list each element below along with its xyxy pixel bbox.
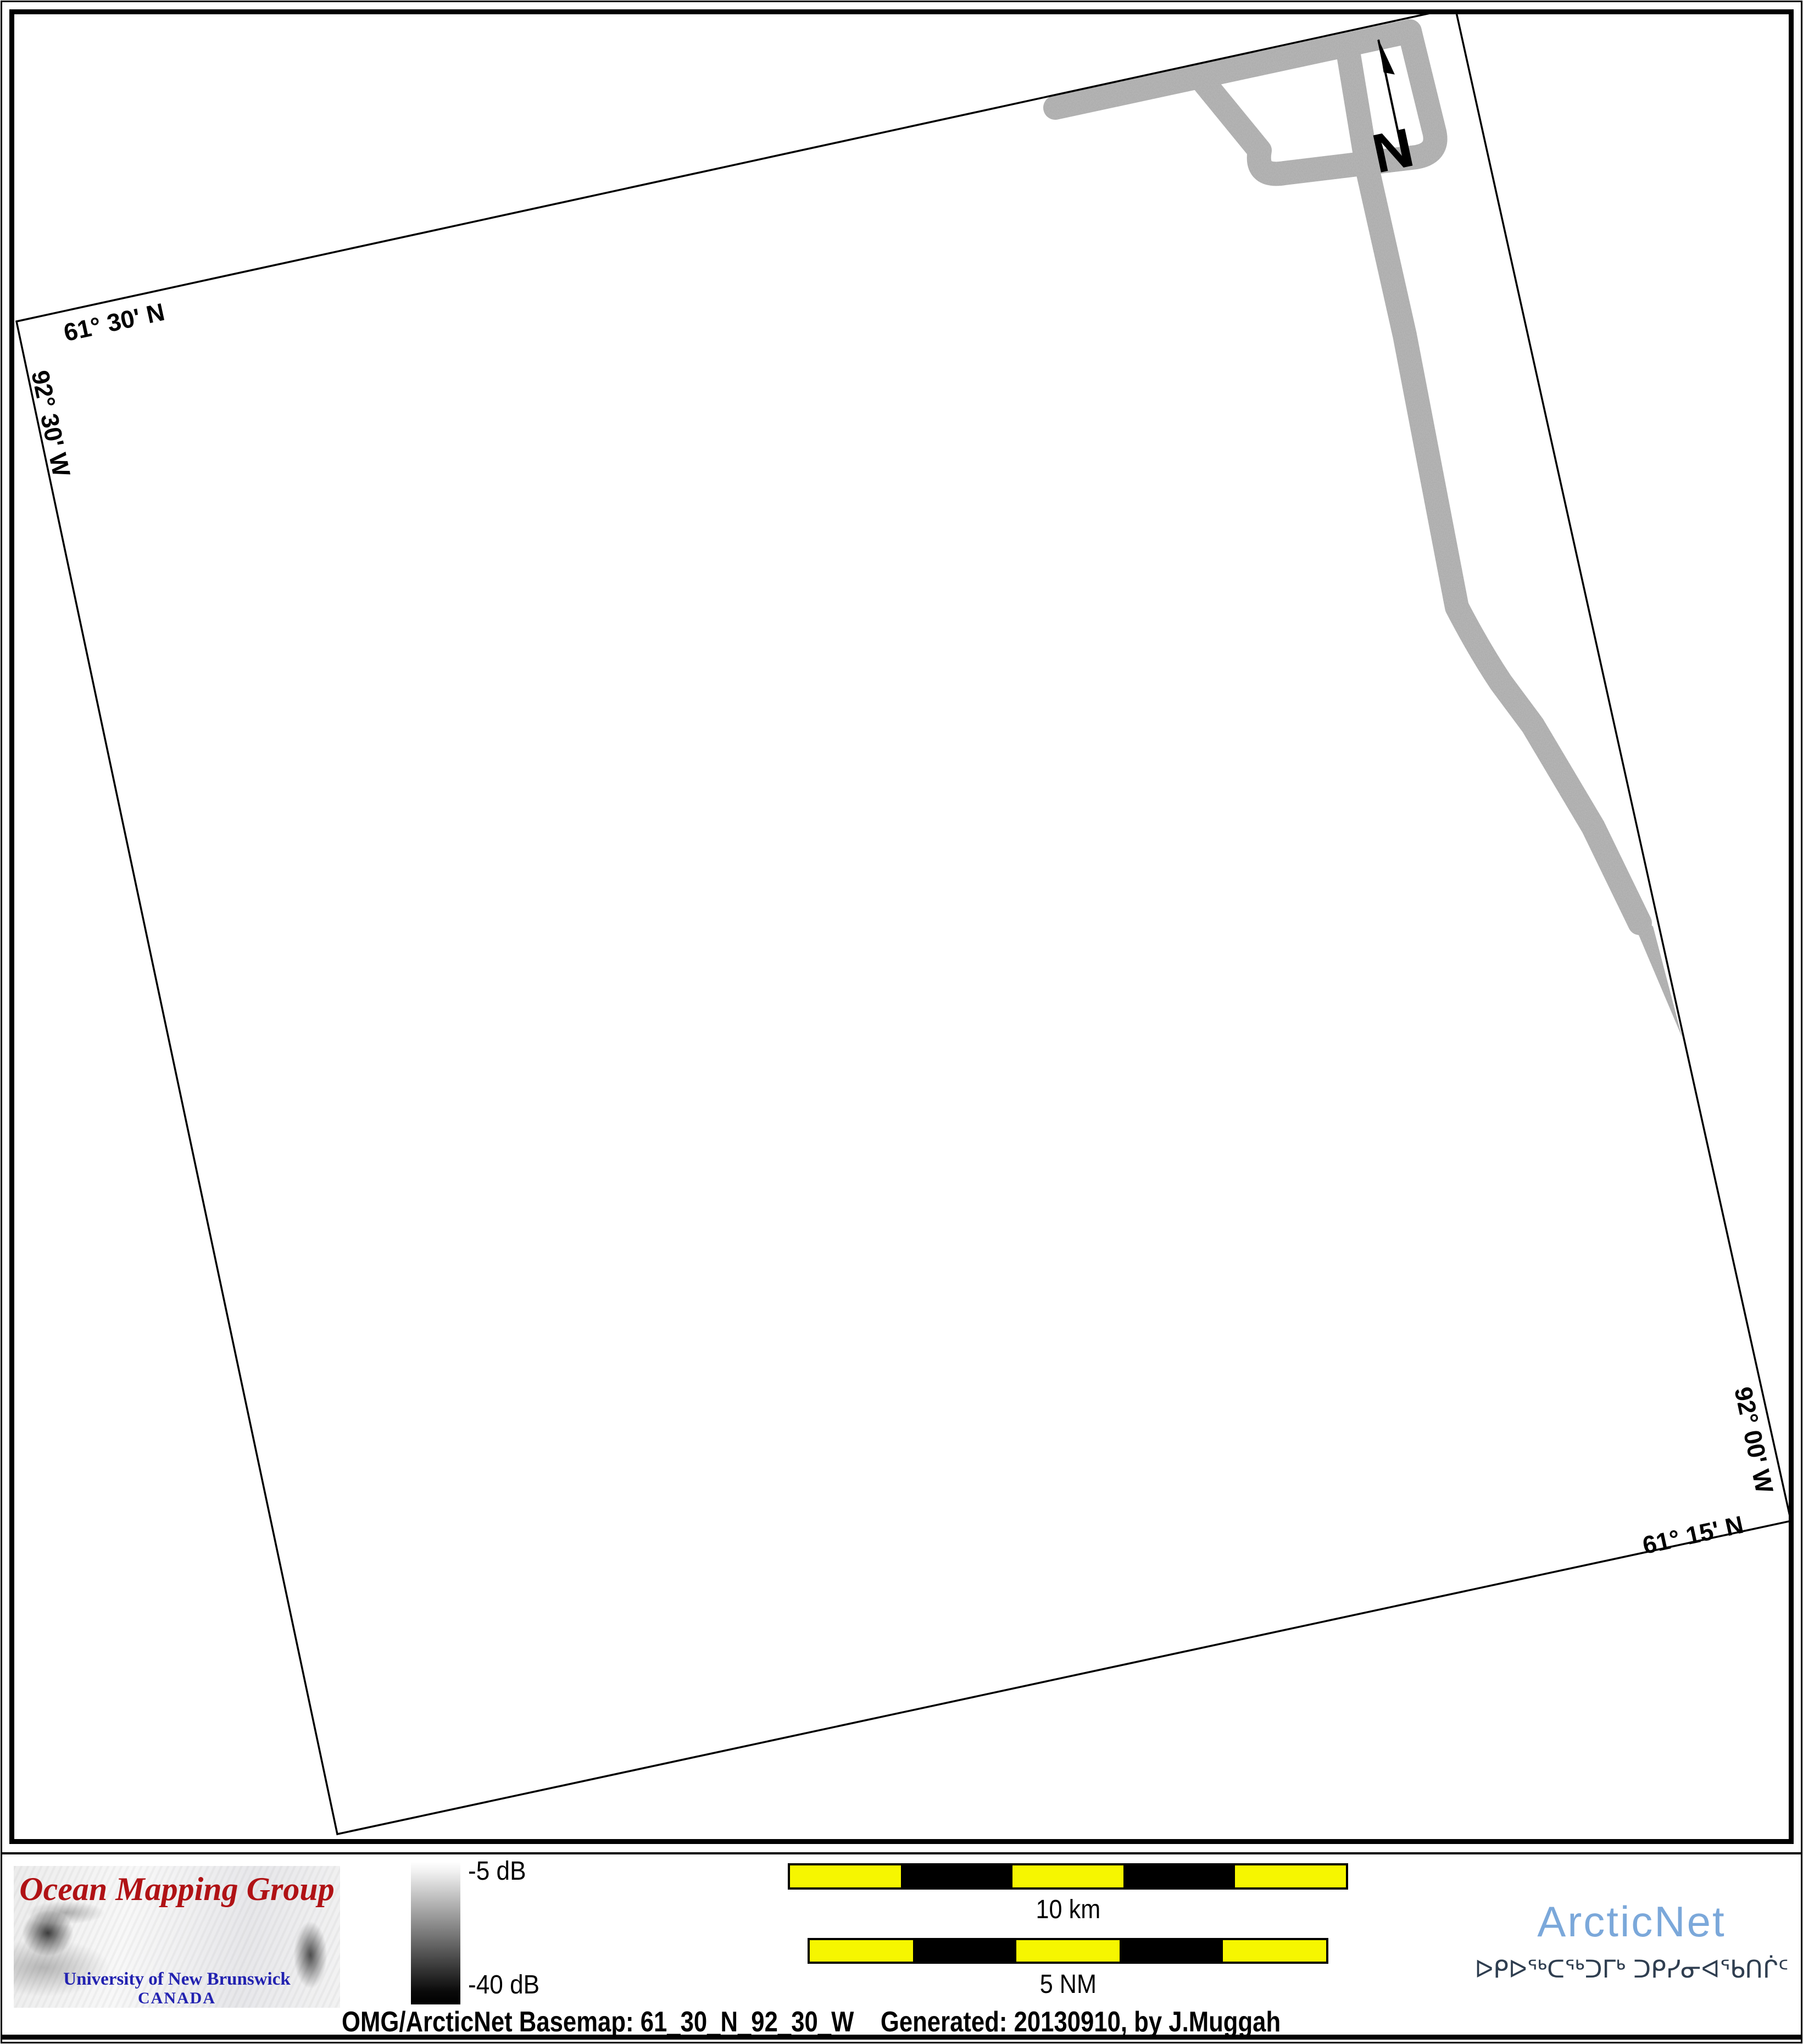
scalebar-5nm-label: 5 NM xyxy=(808,1969,1328,1999)
scalebar-segment xyxy=(1120,1940,1223,1962)
colorbar-max-label: -5 dB xyxy=(468,1856,526,1886)
scalebar-5nm xyxy=(808,1938,1328,1964)
basemap-caption: OMG/ArcticNet Basemap: 61_30_N_92_30_W G… xyxy=(342,2006,1281,2039)
scalebar-segment xyxy=(790,1865,901,1887)
scalebar-segment xyxy=(1012,1865,1123,1887)
scalebar-segment xyxy=(1235,1865,1346,1887)
basemap-sheet: 61° 30' N 92° 30' W 92° 00' W 61° 15' N … xyxy=(0,0,1803,2044)
scalebar-10km-label: 10 km xyxy=(788,1895,1348,1925)
footer-separator-line xyxy=(2,1852,1801,1854)
scalebar-segment xyxy=(901,1865,1012,1887)
scalebar-5nm-text: 5 NM xyxy=(1039,1969,1096,1999)
scalebar-segment xyxy=(1123,1865,1234,1887)
scalebar-10km-text: 10 km xyxy=(1036,1895,1100,1925)
scalebar-10km xyxy=(788,1863,1348,1890)
omg-logo: Ocean Mapping Group University of New Br… xyxy=(14,1866,340,2008)
scalebar-segment xyxy=(1223,1940,1326,1962)
arcticnet-logo: ArcticNet ᐅᑭᐅᖅᑕᖅᑐᒥᒃ ᑐᑭᓯᓂᐊᖃᑎᒌᑦ xyxy=(1461,1897,1802,1984)
colorbar-min-label: -40 dB xyxy=(468,1970,539,2000)
omg-logo-university: University of New Brunswick xyxy=(14,1969,340,1990)
scalebar-segment xyxy=(810,1940,913,1962)
map-panel-border xyxy=(9,9,1794,1844)
backscatter-colorbar xyxy=(411,1862,460,2004)
omg-logo-country: CANADA xyxy=(14,1989,340,2008)
arcticnet-inuktitut: ᐅᑭᐅᖅᑕᖅᑐᒥᒃ ᑐᑭᓯᓂᐊᖃᑎᒌᑦ xyxy=(1461,1956,1802,1984)
scalebar-segment xyxy=(913,1940,1016,1962)
omg-logo-title: Ocean Mapping Group xyxy=(14,1870,340,1908)
arcticnet-wordmark: ArcticNet xyxy=(1461,1897,1802,1947)
scalebar-segment xyxy=(1016,1940,1120,1962)
